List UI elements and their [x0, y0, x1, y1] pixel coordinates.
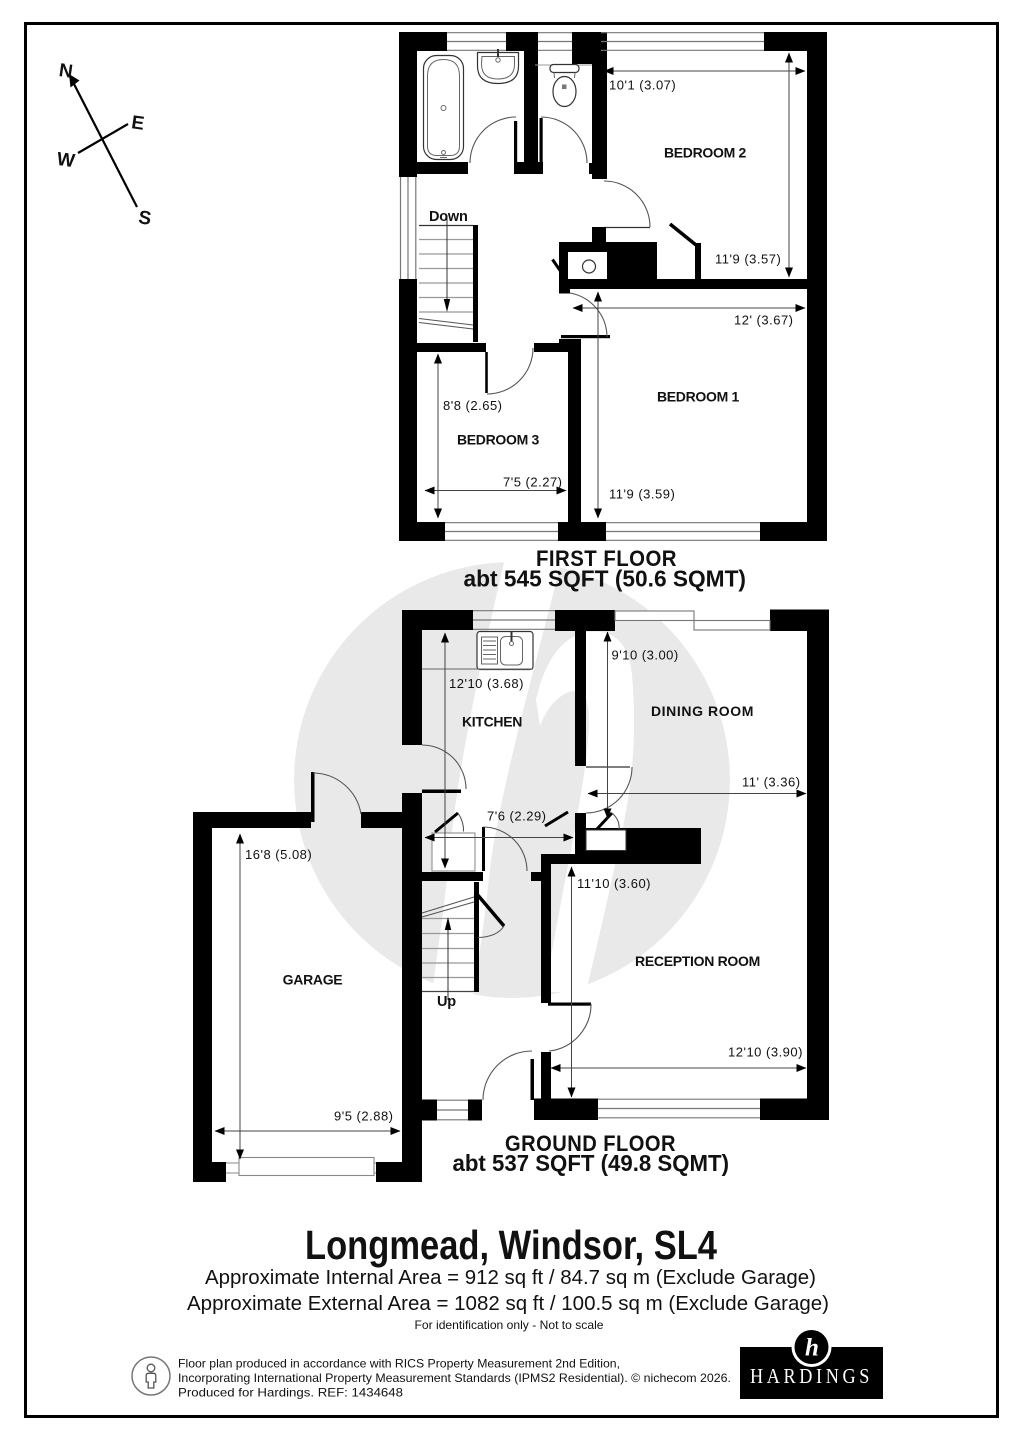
svg-text:GARAGE: GARAGE	[283, 972, 343, 988]
svg-text:11'9 (3.57): 11'9 (3.57)	[715, 252, 781, 267]
svg-text:7'5 (2.27): 7'5 (2.27)	[503, 475, 563, 490]
svg-text:abt 545 SQFT (50.6 SQMT): abt 545 SQFT (50.6 SQMT)	[464, 566, 747, 592]
svg-text:11'9 (3.59): 11'9 (3.59)	[609, 487, 675, 502]
svg-text:Up: Up	[437, 994, 456, 1010]
svg-text:11' (3.36): 11' (3.36)	[742, 775, 801, 790]
svg-text:KITCHEN: KITCHEN	[462, 714, 522, 730]
svg-text:N: N	[58, 60, 75, 83]
svg-text:abt 537 SQFT (49.8 SQMT): abt 537 SQFT (49.8 SQMT)	[453, 1150, 730, 1176]
svg-text:Down: Down	[429, 209, 468, 225]
svg-text:11'10 (3.60): 11'10 (3.60)	[577, 876, 651, 891]
svg-text:BEDROOM 1: BEDROOM 1	[657, 389, 740, 405]
svg-text:16'8 (5.08): 16'8 (5.08)	[245, 847, 312, 862]
svg-text:12' (3.67): 12' (3.67)	[734, 313, 794, 328]
svg-text:For identification only - Not: For identification only - Not to scale	[415, 1318, 604, 1332]
svg-text:Incorporating International Pr: Incorporating International Property Mea…	[178, 1371, 731, 1385]
svg-text:BEDROOM 3: BEDROOM 3	[457, 432, 540, 448]
svg-text:12'10 (3.68): 12'10 (3.68)	[449, 676, 524, 691]
svg-text:Floor plan produced in accorda: Floor plan produced in accordance with R…	[178, 1357, 620, 1371]
svg-text:12'10 (3.90): 12'10 (3.90)	[728, 1045, 803, 1060]
svg-text:10'1 (3.07): 10'1 (3.07)	[609, 78, 676, 93]
svg-text:9'5 (2.88): 9'5 (2.88)	[334, 1109, 394, 1124]
svg-text:h: h	[805, 1335, 819, 1362]
svg-text:W: W	[55, 149, 76, 172]
svg-text:RECEPTION ROOM: RECEPTION ROOM	[635, 953, 760, 969]
svg-text:8'8 (2.65): 8'8 (2.65)	[443, 398, 503, 413]
svg-text:9'10 (3.00): 9'10 (3.00)	[612, 648, 679, 663]
svg-text:HARDINGS: HARDINGS	[750, 1364, 873, 1388]
svg-text:BEDROOM 2: BEDROOM 2	[664, 145, 747, 161]
svg-text:Longmead, Windsor, SL4: Longmead, Windsor, SL4	[305, 1222, 717, 1268]
svg-text:Approximate External Area = 10: Approximate External Area = 1082 sq ft /…	[187, 1293, 829, 1315]
svg-text:Approximate Internal Area = 91: Approximate Internal Area = 912 sq ft / …	[205, 1267, 816, 1289]
svg-text:DINING ROOM: DINING ROOM	[651, 703, 754, 719]
svg-text:7'6 (2.29): 7'6 (2.29)	[487, 809, 547, 824]
svg-text:Produced for Hardings. REF:: Produced for Hardings. REF: 1434648	[178, 1386, 403, 1400]
